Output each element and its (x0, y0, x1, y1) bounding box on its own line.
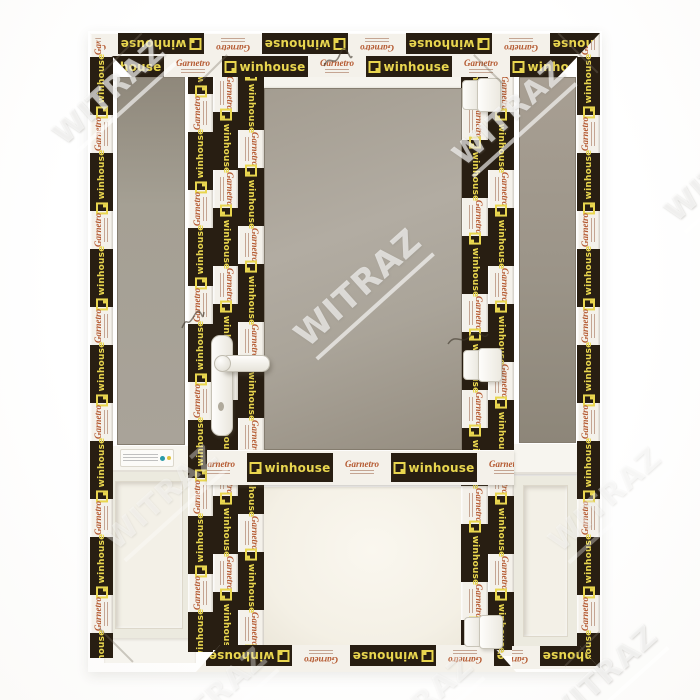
garnetro-text: Garnetro (94, 405, 103, 439)
garnetro-label: Garnetro (243, 324, 259, 358)
winhouse-text: winhouse (221, 604, 231, 652)
tape-segment-light: Garnetro (577, 115, 600, 153)
microtext-lines (243, 137, 249, 161)
hinge-door-leaf (477, 78, 501, 112)
microtext-lines (218, 561, 224, 585)
tape-segment-light: Garnetro (90, 403, 113, 441)
winhouse-text: winhouse (353, 649, 419, 663)
tape-segment-light: Garnetro (90, 499, 113, 537)
garnetro-text: Garnetro (94, 597, 103, 631)
tape-segment-light: Garnetro (238, 610, 264, 648)
garnetro-text: Garnetro (500, 268, 509, 302)
winhouse-text: winhouse (246, 180, 256, 230)
microtext-lines (591, 314, 597, 338)
winhouse-logo-icon (250, 462, 262, 474)
tape-flow: GarnetrowinhouseGarnetrowinhouseGarnetro… (577, 33, 600, 668)
winhouse-logo-icon (421, 650, 433, 662)
garnetro-label: Garnetro (94, 117, 110, 151)
tape-segment-light: Garnetro (90, 211, 113, 249)
garnetro-text: Garnetro (581, 117, 590, 151)
microtext-lines (591, 602, 597, 626)
microtext-lines (243, 233, 249, 257)
winhouse-label: winhouse (583, 150, 595, 215)
microtext-lines (350, 470, 374, 476)
sticker-logo-yellow (167, 456, 171, 460)
handle-backplate (211, 335, 233, 436)
witraz-watermark: WITRAZ (658, 110, 700, 229)
winhouse-logo-icon (469, 521, 481, 533)
tape-segment-dark: winhouse (238, 264, 264, 322)
tape-segment-light: Garnetro (577, 403, 600, 441)
winhouse-label: winhouse (220, 109, 232, 174)
winhouse-text: winhouse (209, 649, 275, 663)
winhouse-logo-icon (495, 589, 507, 601)
winhouse-logo-icon (495, 301, 507, 313)
garnetro-label: Garnetro (193, 576, 209, 610)
winhouse-label: winhouse (583, 438, 595, 503)
tape-segment-light: Garnetro (512, 646, 540, 666)
winhouse-text: winhouse (221, 124, 231, 174)
winhouse-logo-icon (477, 38, 489, 50)
microtext-lines (494, 470, 514, 476)
microtext-lines (221, 36, 245, 42)
microtext-lines (467, 397, 473, 421)
winhouse-label: winhouse (469, 521, 481, 586)
tape-segment-light: Garnetro (188, 190, 213, 228)
garnetro-text: Garnetro (345, 460, 379, 469)
microtext-lines (203, 485, 209, 509)
garnetro-label: Garnetro (467, 584, 483, 618)
winhouse-text: winhouse (97, 246, 107, 296)
winhouse-label: winhouse (96, 438, 108, 503)
microtext-lines (104, 218, 110, 242)
tape-segment-dark: winhouse (238, 552, 264, 610)
garnetro-label: Garnetro (581, 117, 597, 151)
left-outer-frame-tape: GarnetrowinhouseGarnetrowinhouseGarnetro… (90, 33, 113, 658)
door-bottom-panel (264, 487, 461, 645)
tape-segment-dark: winhouse (188, 132, 213, 190)
garnetro-label: Garnetro (581, 405, 597, 439)
garnetro-label: Garnetro (94, 213, 110, 247)
garnetro-label: Garnetro (193, 192, 209, 226)
winhouse-logo-icon (495, 493, 507, 505)
winhouse-text: winhouse (240, 60, 306, 74)
garnetro-label: Garnetro (94, 309, 110, 343)
product-photo: GarnetrowinhouseGarnetrowinhouseGarnetro… (0, 0, 700, 700)
winhouse-logo-icon (394, 462, 406, 474)
garnetro-text: Garnetro (250, 228, 259, 262)
garnetro-text: Garnetro (500, 556, 509, 590)
tape-flow: GarnetrowinhouseGarnetrowinhouseGarnetro… (196, 645, 516, 666)
garnetro-label: Garnetro (243, 228, 259, 262)
winhouse-text: winhouse (97, 150, 107, 200)
microtext-lines (591, 506, 597, 530)
microtext-lines (591, 122, 597, 146)
microtext-lines (203, 101, 209, 125)
winhouse-logo-icon (495, 397, 507, 409)
door-left-stile-tape: GarnetrowinhouseGarnetrowinhouseGarnetro… (238, 48, 264, 652)
winhouse-text: winhouse (470, 248, 480, 298)
tape-segment-light: Garnetro (90, 115, 113, 153)
winhouse-label: winhouse (245, 549, 257, 614)
garnetro-label: Garnetro (218, 268, 234, 302)
winhouse-label: winhouse (96, 54, 108, 119)
tape-segment-light: Garnetro (207, 453, 247, 482)
garnetro-label: Garnetro (243, 132, 259, 166)
pen-scribble (446, 330, 490, 348)
microtext-lines (203, 197, 209, 221)
garnetro-text: Garnetro (216, 43, 250, 52)
winhouse-text: winhouse (584, 246, 594, 296)
garnetro-text: Garnetro (193, 576, 202, 610)
winhouse-text: winhouse (221, 220, 231, 270)
garnetro-text: Garnetro (448, 655, 482, 664)
winhouse-label: winhouse (195, 513, 207, 578)
door-midrail-tape: GarnetrowinhouseGarnetrowinhouseGarnetro… (207, 450, 514, 485)
microtext-lines (509, 36, 533, 42)
winhouse-text: winhouse (196, 609, 206, 652)
garnetro-label: Garnetro (243, 420, 259, 454)
winhouse-label: winhouse (195, 129, 207, 194)
winhouse-text: winhouse (97, 438, 107, 488)
left-sidelight-bottom-frame (104, 638, 196, 663)
microtext-lines (207, 470, 230, 476)
winhouse-logo-icon (245, 549, 257, 561)
garnetro-text: Garnetro (500, 172, 509, 206)
winhouse-label: winhouse (96, 534, 108, 599)
left-sidelight-glass (117, 77, 185, 445)
garnetro-text: Garnetro (94, 309, 103, 343)
tape-segment-dark: winhouse (488, 208, 514, 266)
winhouse-label: winhouse (495, 109, 507, 174)
winhouse-text: winhouse (246, 84, 256, 134)
winhouse-logo-icon (469, 137, 481, 149)
winhouse-text: winhouse (584, 342, 594, 392)
garnetro-text: Garnetro (225, 556, 234, 590)
tape-segment-dark: winhouse (188, 228, 213, 286)
garnetro-label: Garnetro (207, 460, 235, 476)
tape-segment-dark: winhouse (577, 345, 600, 403)
winhouse-text: winhouse (246, 372, 256, 422)
winhouse-label: winhouse (583, 342, 595, 407)
winhouse-label: winhouse (220, 589, 232, 652)
winhouse-label: winhouse (583, 246, 595, 311)
pen-scribble (178, 306, 206, 334)
garnetro-label: Garnetro (243, 516, 259, 550)
tape-segment-light: Garnetro (461, 390, 488, 428)
winhouse-text: winhouse (97, 342, 107, 392)
tape-segment-light: Garnetro (577, 307, 600, 345)
garnetro-text: Garnetro (176, 59, 210, 68)
microtext-lines (591, 218, 597, 242)
garnetro-text: Garnetro (250, 516, 259, 550)
tape-segment-light: Garnetro (577, 595, 600, 633)
microtext-lines (104, 506, 110, 530)
winhouse-logo-icon (277, 650, 289, 662)
right-sidelight-glass (519, 77, 576, 443)
garnetro-text: Garnetro (193, 384, 202, 418)
hinge-door-leaf (478, 348, 502, 382)
right-sidelight-midrail (512, 444, 578, 474)
microtext-lines (467, 205, 473, 229)
microtext-lines (218, 273, 224, 297)
winhouse-text: winhouse (196, 513, 206, 563)
tape-segment-light: Garnetro (488, 554, 514, 592)
microtext-lines (203, 581, 209, 605)
microtext-lines (467, 493, 473, 517)
microtext-lines (453, 648, 477, 654)
garnetro-label: Garnetro (218, 556, 234, 590)
winhouse-text: winhouse (265, 461, 331, 475)
winhouse-logo-icon (469, 233, 481, 245)
winhouse-label: winhouse (353, 649, 434, 663)
tape-segment-light: Garnetro (348, 33, 406, 54)
tape-segment-dark: winhouse (488, 112, 514, 170)
tape-flow: GarnetrowinhouseGarnetrowinhouseGarnetro… (207, 453, 514, 482)
garnetro-label: Garnetro (94, 405, 110, 439)
winhouse-label: winhouse (495, 493, 507, 558)
garnetro-text: Garnetro (581, 597, 590, 631)
garnetro-label: Garnetro (94, 597, 110, 631)
winhouse-logo-icon (220, 205, 232, 217)
garnetro-label: Garnetro (467, 392, 483, 426)
microtext-lines (512, 648, 523, 654)
winhouse-label: winhouse (96, 246, 108, 311)
winhouse-text: winhouse (97, 534, 107, 584)
sticker-microtext (123, 454, 158, 462)
garnetro-text: Garnetro (94, 213, 103, 247)
left-sidelight-panel (106, 472, 192, 638)
tape-segment-dark: winhouse (222, 56, 308, 77)
microtext-lines (467, 301, 473, 325)
winhouse-text: winhouse (196, 417, 206, 467)
microtext-lines (104, 314, 110, 338)
tape-flow: GarnetrowinhouseGarnetrowinhouseGarnetro… (488, 44, 514, 650)
handle-hub (214, 355, 231, 372)
tape-segment-dark: winhouse (188, 612, 213, 652)
garnetro-text: Garnetro (474, 392, 483, 426)
winhouse-logo-icon (245, 165, 257, 177)
tape-segment-light: Garnetro (492, 33, 550, 54)
garnetro-label: Garnetro (304, 648, 338, 664)
microtext-lines (591, 410, 597, 434)
tape-segment-light: Garnetro (204, 33, 262, 54)
winhouse-label: winhouse (195, 609, 207, 652)
tape-segment-light: Garnetro (213, 170, 238, 208)
tape-segment-dark: winhouse (391, 453, 477, 482)
winhouse-label: winhouse (409, 37, 490, 51)
garnetro-label: Garnetro (448, 648, 482, 664)
tape-segment-dark: winhouse (461, 524, 488, 582)
winhouse-logo-icon (220, 301, 232, 313)
microtext-lines (218, 81, 224, 105)
winhouse-text: winhouse (265, 37, 331, 51)
tape-segment-dark: winhouse (90, 441, 113, 499)
hinge-door-leaf (479, 615, 503, 649)
winhouse-label: winhouse (225, 60, 306, 74)
bottom-hinge (464, 615, 504, 647)
winhouse-text: winhouse (584, 438, 594, 488)
microtext-lines (493, 273, 499, 297)
garnetro-text: Garnetro (250, 612, 259, 646)
keyhole (218, 402, 224, 411)
winhouse-logo-icon (220, 109, 232, 121)
garnetro-text: Garnetro (504, 43, 538, 52)
glazing-spec-sticker (120, 449, 174, 467)
winhouse-label: winhouse (469, 137, 481, 202)
top-hinge (462, 78, 502, 110)
right-outer-frame-tape: GarnetrowinhouseGarnetrowinhouseGarnetro… (577, 33, 600, 668)
winhouse-text: winhouse (409, 37, 475, 51)
winhouse-text: winhouse (584, 150, 594, 200)
garnetro-text: Garnetro (193, 96, 202, 130)
garnetro-text: Garnetro (512, 655, 528, 664)
garnetro-label: Garnetro (218, 172, 234, 206)
microtext-lines (218, 177, 224, 201)
tape-segment-dark: winhouse (577, 153, 600, 211)
tape-segment-light: Garnetro (333, 453, 391, 482)
garnetro-text: Garnetro (581, 213, 590, 247)
tape-segment-dark: winhouse (90, 153, 113, 211)
microtext-lines (493, 177, 499, 201)
winhouse-label: winhouse (220, 205, 232, 270)
winhouse-label: winhouse (245, 69, 257, 134)
winhouse-text: winhouse (409, 461, 475, 475)
microtext-lines (493, 561, 499, 585)
microtext-lines (104, 602, 110, 626)
tape-segment-light: Garnetro (188, 574, 213, 612)
right-panel-recess (523, 485, 568, 637)
tape-segment-light: Garnetro (488, 266, 514, 304)
door-glass (264, 88, 462, 450)
tape-flow: GarnetrowinhouseGarnetrowinhouseGarnetro… (90, 33, 113, 658)
microtext-lines (243, 521, 249, 545)
tape-segment-light: Garnetro (188, 94, 213, 132)
tape-segment-light: Garnetro (213, 266, 238, 304)
tape-segment-light: Garnetro (452, 56, 510, 77)
tape-segment-dark: winhouse (90, 249, 113, 307)
garnetro-text: Garnetro (489, 460, 514, 469)
garnetro-label: Garnetro (94, 501, 110, 535)
garnetro-label: Garnetro (467, 296, 483, 330)
garnetro-label: Garnetro (193, 96, 209, 130)
door-bottom-rail-tape: GarnetrowinhouseGarnetrowinhouseGarnetro… (196, 645, 516, 672)
garnetro-label: Garnetro (176, 59, 210, 75)
garnetro-text: Garnetro (250, 420, 259, 454)
winhouse-label: winhouse (220, 493, 232, 558)
winhouse-logo-icon (245, 261, 257, 273)
tape-segment-light: Garnetro (488, 170, 514, 208)
garnetro-label: Garnetro (218, 76, 234, 110)
sticker-logo-teal (160, 456, 165, 461)
tape-flow: GarnetrowinhouseGarnetrowinhouseGarnetro… (188, 40, 213, 652)
tape-segment-dark: winhouse (188, 516, 213, 574)
garnetro-label: Garnetro (493, 268, 509, 302)
garnetro-text: Garnetro (474, 200, 483, 234)
microtext-lines (243, 329, 249, 353)
tape-segment-dark: winhouse (238, 168, 264, 226)
winhouse-logo-icon (189, 38, 201, 50)
tape-segment-dark: winhouse (350, 645, 436, 666)
garnetro-text: Garnetro (94, 117, 103, 151)
tape-segment-dark: winhouse (213, 208, 238, 266)
garnetro-label: Garnetro (489, 460, 514, 476)
tape-segment-light: Garnetro (90, 595, 113, 633)
watermark-text: WITRAZ (658, 110, 700, 234)
garnetro-label: Garnetro (345, 460, 379, 476)
winhouse-label: winhouse (583, 534, 595, 599)
tape-segment-light: Garnetro (577, 211, 600, 249)
garnetro-label: Garnetro (512, 648, 528, 664)
tape-segment-light: Garnetro (461, 198, 488, 236)
garnetro-text: Garnetro (304, 655, 338, 664)
tape-segment-light: Garnetro (461, 486, 488, 524)
garnetro-label: Garnetro (581, 597, 597, 631)
microtext-lines (243, 425, 249, 449)
winhouse-label: winhouse (250, 461, 331, 475)
winhouse-label: winhouse (469, 233, 481, 298)
garnetro-label: Garnetro (360, 36, 394, 52)
garnetro-text: Garnetro (360, 43, 394, 52)
garnetro-text: Garnetro (250, 132, 259, 166)
winhouse-logo-icon (220, 589, 232, 601)
winhouse-text: winhouse (246, 564, 256, 614)
winhouse-label: winhouse (96, 150, 108, 215)
microtext-lines (181, 69, 205, 75)
garnetro-label: Garnetro (581, 213, 597, 247)
garnetro-text: Garnetro (581, 501, 590, 535)
garnetro-text: Garnetro (581, 309, 590, 343)
pen-scribble (322, 48, 354, 72)
garnetro-label: Garnetro (243, 612, 259, 646)
tape-segment-light: Garnetro (292, 645, 350, 666)
microtext-lines (365, 36, 389, 42)
garnetro-label: Garnetro (504, 36, 538, 52)
microtext-lines (243, 617, 249, 641)
tape-segment-dark: winhouse (406, 33, 492, 54)
garnetro-label: Garnetro (493, 556, 509, 590)
garnetro-label: Garnetro (467, 200, 483, 234)
tape-segment-dark: winhouse (90, 537, 113, 595)
left-mullion-tape: GarnetrowinhouseGarnetrowinhouseGarnetro… (188, 40, 213, 652)
garnetro-text: Garnetro (225, 268, 234, 302)
tape-segment-light: Garnetro (461, 294, 488, 332)
winhouse-label: winhouse (195, 417, 207, 482)
winhouse-label: winhouse (245, 165, 257, 230)
winhouse-label: winhouse (495, 205, 507, 270)
winhouse-text: winhouse (196, 129, 206, 179)
tape-flow: GarnetrowinhouseGarnetrowinhouseGarnetro… (238, 48, 264, 652)
winhouse-logo-icon (513, 61, 525, 73)
garnetro-text: Garnetro (250, 324, 259, 358)
garnetro-text: Garnetro (225, 76, 234, 110)
garnetro-label: Garnetro (193, 480, 209, 514)
tape-segment-light: Garnetro (577, 499, 600, 537)
tape-segment-light: Garnetro (238, 226, 264, 264)
tape-segment-light: Garnetro (213, 554, 238, 592)
winhouse-text: winhouse (584, 534, 594, 584)
winhouse-text: winhouse (246, 276, 256, 326)
tape-segment-light: Garnetro (213, 74, 238, 112)
tape-segment-dark: winhouse (577, 537, 600, 595)
microtext-lines (309, 648, 333, 654)
winhouse-text: winhouse (221, 508, 231, 558)
winhouse-text: winhouse (470, 536, 480, 586)
tape-segment-dark: winhouse (206, 645, 292, 666)
winhouse-label: winhouse (394, 461, 475, 475)
tape-segment-dark: winhouse (577, 249, 600, 307)
garnetro-text: Garnetro (474, 584, 483, 618)
